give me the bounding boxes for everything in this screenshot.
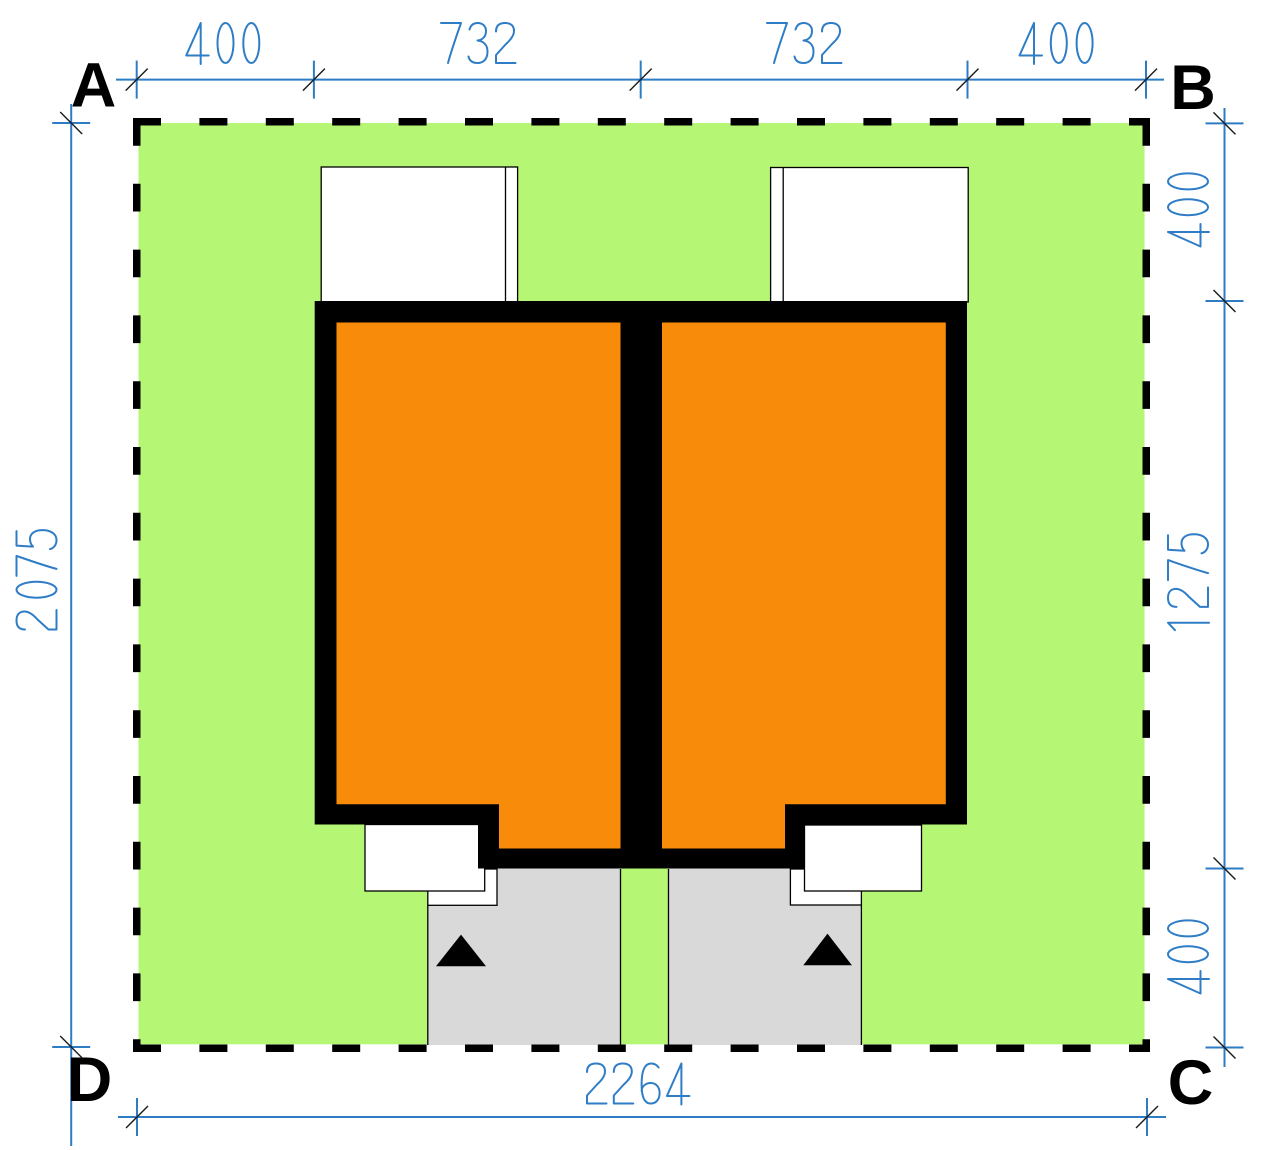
svg-text:C: C bbox=[1168, 1048, 1214, 1118]
svg-text:A: A bbox=[71, 51, 117, 121]
svg-text:B: B bbox=[1170, 53, 1216, 123]
svg-text:D: D bbox=[67, 1045, 113, 1115]
